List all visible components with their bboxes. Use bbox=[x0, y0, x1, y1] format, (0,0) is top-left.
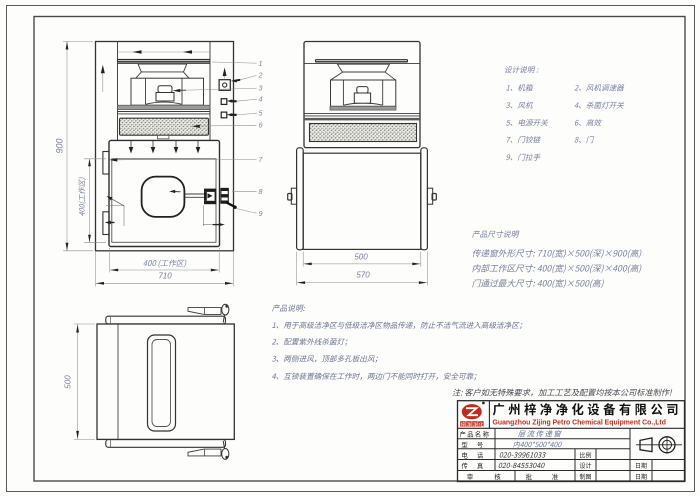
svg-text:2: 2 bbox=[258, 71, 263, 80]
svg-text:8: 8 bbox=[259, 187, 263, 196]
svg-text:设计: 设计 bbox=[579, 461, 591, 470]
svg-text:020-39961033: 020-39961033 bbox=[499, 451, 546, 461]
svg-text:020-84553040: 020-84553040 bbox=[498, 461, 545, 471]
svg-text:批: 批 bbox=[526, 472, 533, 481]
svg-text:4: 4 bbox=[259, 94, 263, 103]
svg-text:准: 准 bbox=[552, 472, 558, 481]
svg-text:1、用于高级洁净区与低级洁净区物品传递，防止不洁气流进入高级: 1、用于高级洁净区与低级洁净区物品传递，防止不洁气流进入高级洁净区； bbox=[272, 320, 527, 331]
svg-text:400(工作区): 400(工作区) bbox=[78, 177, 88, 217]
svg-text:Guangzhou Zijing Petro Chemica: Guangzhou Zijing Petro Chemical Equipmen… bbox=[493, 419, 666, 426]
svg-text:7、门铰链: 7、门铰链 bbox=[506, 135, 542, 146]
svg-text:传递窗外形尺寸: 710(宽)×500(深)×900(高): 传递窗外形尺寸: 710(宽)×500(深)×900(高) bbox=[472, 247, 643, 260]
svg-text:核: 核 bbox=[494, 472, 501, 481]
svg-text:9、门拉手: 9、门拉手 bbox=[506, 152, 541, 163]
svg-text:3、风机: 3、风机 bbox=[506, 100, 533, 111]
svg-text:2、配置紫外线杀菌灯；: 2、配置紫外线杀菌灯； bbox=[272, 336, 352, 347]
svg-text:产品尺寸说明: 产品尺寸说明 bbox=[472, 229, 520, 240]
svg-text:1: 1 bbox=[259, 59, 263, 68]
svg-text:比例: 比例 bbox=[579, 450, 591, 459]
svg-text:设计说明 :: 设计说明 : bbox=[504, 65, 539, 76]
svg-text:梓: 梓 bbox=[461, 421, 466, 428]
svg-text:900: 900 bbox=[55, 138, 65, 153]
svg-text:产品说明:: 产品说明: bbox=[272, 303, 306, 314]
svg-text:广州梓净净化设备有限公司: 广州梓净净化设备有限公司 bbox=[493, 400, 683, 418]
svg-text:570: 570 bbox=[356, 271, 370, 280]
svg-text:净: 净 bbox=[467, 421, 472, 428]
svg-text:产品名称: 产品名称 bbox=[460, 430, 491, 439]
svg-text:化: 化 bbox=[479, 421, 484, 428]
svg-text:4、互锁装置确保在工作时，两边门不能同时打开，安全可靠；: 4、互锁装置确保在工作时，两边门不能同时打开，安全可靠； bbox=[272, 371, 481, 382]
svg-text:内400*500*400: 内400*500*400 bbox=[513, 440, 563, 450]
svg-text:5、电源开关: 5、电源开关 bbox=[506, 117, 549, 128]
svg-text:日期: 日期 bbox=[635, 472, 647, 481]
svg-text:2、风机调速器: 2、风机调速器 bbox=[574, 83, 625, 94]
svg-text:8、门: 8、门 bbox=[574, 135, 595, 146]
svg-text:9: 9 bbox=[259, 209, 263, 218]
svg-text:6: 6 bbox=[259, 121, 263, 130]
svg-text:门通过最大尺寸: 400(宽)×500(高): 门通过最大尺寸: 400(宽)×500(高) bbox=[472, 277, 605, 290]
svg-text:1、机箱: 1、机箱 bbox=[506, 83, 534, 94]
svg-text:3、两侧进风，顶部多孔板出风；: 3、两侧进风，顶部多孔板出风； bbox=[272, 354, 383, 365]
svg-text:4、杀菌灯开关: 4、杀菌灯开关 bbox=[574, 100, 624, 111]
svg-text:传 真: 传 真 bbox=[462, 461, 485, 470]
svg-text:400 (工作区): 400 (工作区) bbox=[143, 258, 187, 269]
svg-text:500: 500 bbox=[354, 252, 368, 261]
svg-text:内部工作区尺寸: 400(宽)×500(深)×400(高): 内部工作区尺寸: 400(宽)×500(深)×400(高) bbox=[472, 262, 643, 275]
svg-text:制图: 制图 bbox=[579, 472, 591, 481]
svg-text:净: 净 bbox=[473, 421, 478, 428]
svg-text:3: 3 bbox=[259, 83, 263, 92]
svg-text:审: 审 bbox=[467, 472, 473, 481]
svg-text:注: 客户如无特殊要求，加工工艺及配置均按本公司标准制作!: 注: 客户如无特殊要求，加工工艺及配置均按本公司标准制作! bbox=[452, 387, 673, 399]
svg-text:日期: 日期 bbox=[635, 461, 647, 470]
svg-text:710: 710 bbox=[158, 272, 172, 281]
svg-text:层流传递窗: 层流传递窗 bbox=[518, 429, 563, 440]
svg-text:6、高效: 6、高效 bbox=[574, 117, 602, 128]
svg-text:型 号: 型 号 bbox=[462, 440, 485, 449]
svg-text:500: 500 bbox=[64, 375, 73, 389]
svg-text:电 话: 电 话 bbox=[462, 450, 485, 459]
